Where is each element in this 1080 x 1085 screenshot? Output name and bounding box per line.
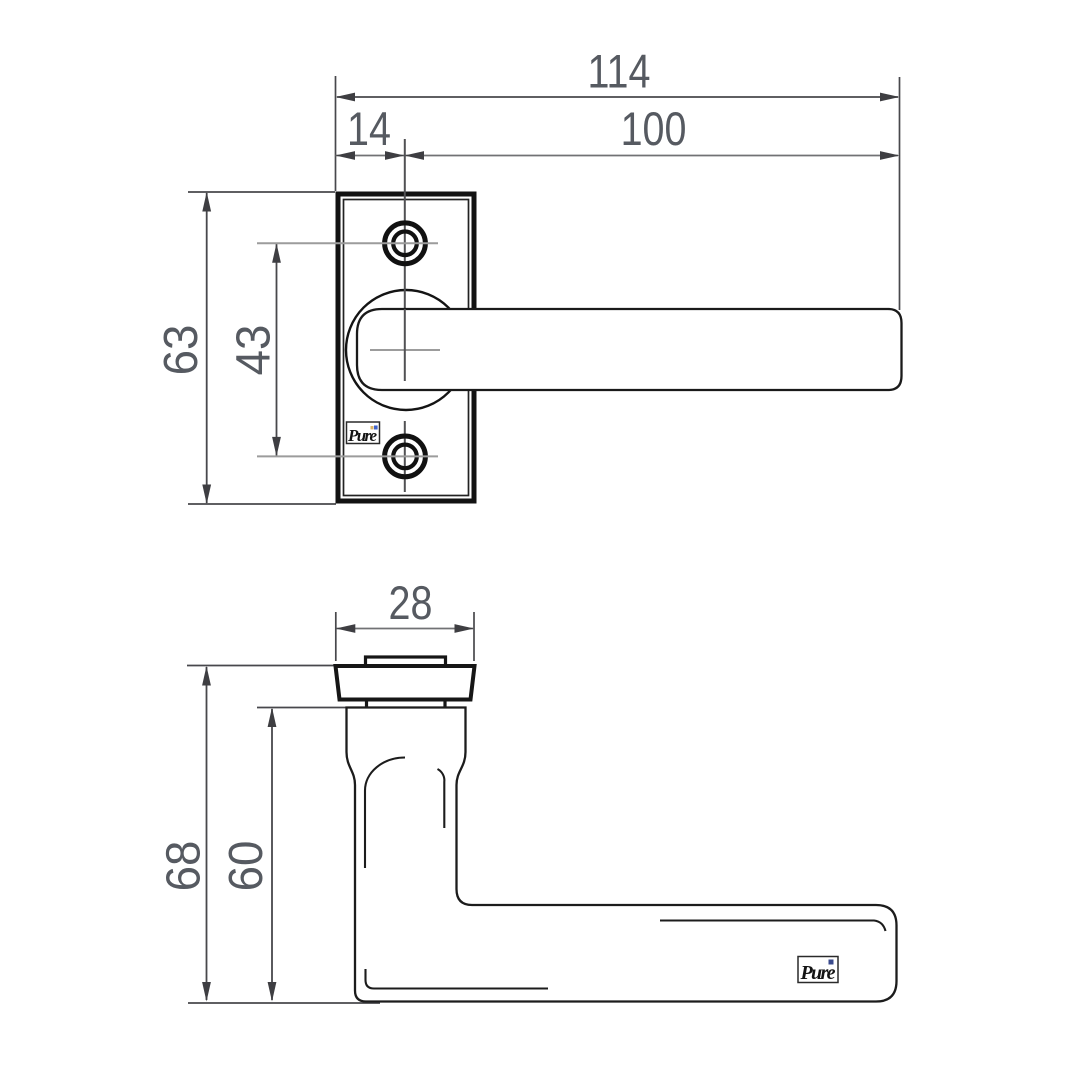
svg-text:60: 60: [219, 841, 272, 892]
svg-text:14: 14: [347, 104, 391, 156]
svg-text:63: 63: [154, 325, 207, 376]
svg-text:28: 28: [389, 578, 433, 630]
svg-text:100: 100: [621, 104, 687, 156]
svg-text:43: 43: [226, 325, 279, 376]
svg-text:68: 68: [156, 841, 209, 892]
svg-text:Pure: Pure: [800, 962, 836, 984]
svg-text:114: 114: [588, 46, 651, 98]
